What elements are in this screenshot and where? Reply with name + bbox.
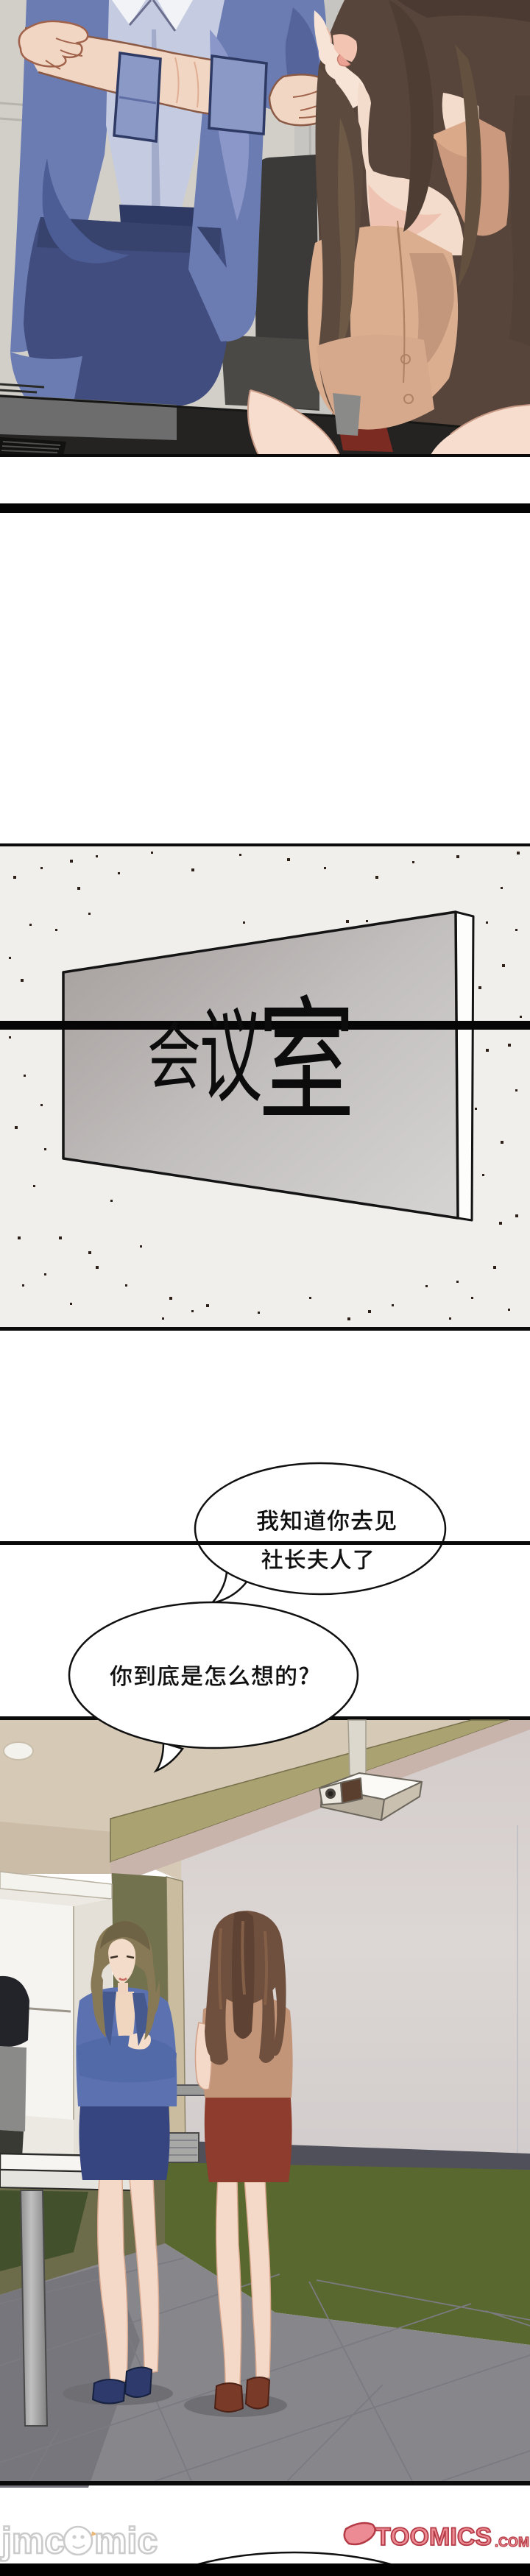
svg-text:jmc: jmc — [1, 2520, 65, 2561]
svg-text:TOOMICS: TOOMICS — [375, 2523, 492, 2551]
svg-text:mic: mic — [94, 2520, 158, 2561]
svg-text:.COM: .COM — [495, 2535, 529, 2550]
